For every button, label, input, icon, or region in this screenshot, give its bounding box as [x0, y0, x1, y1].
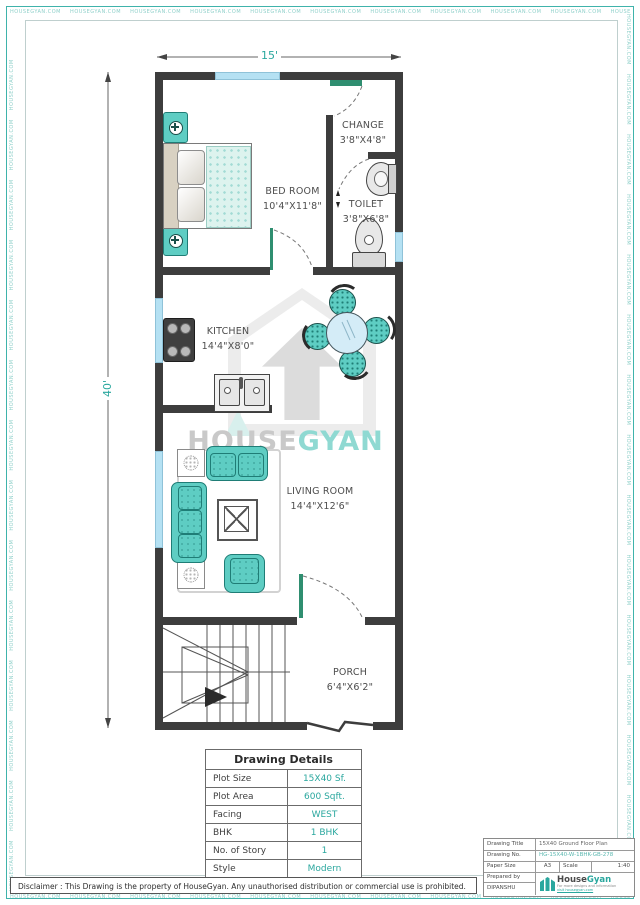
- door-change: [330, 80, 362, 86]
- room-size: 14'4"X8'0": [202, 341, 255, 352]
- wall-bedroom-bottom-a: [155, 267, 270, 275]
- nightstand-icon: [163, 112, 188, 143]
- drawing-no-label: Drawing No.: [484, 850, 536, 861]
- prepared-by-value: DIPANSHU: [484, 883, 536, 895]
- sink-icon: [214, 374, 270, 412]
- toilet-tank: [352, 252, 386, 268]
- detail-label: Plot Area: [206, 788, 288, 806]
- watermark-word-gyan: GYAN: [298, 426, 384, 457]
- room-name: PORCH: [333, 667, 367, 678]
- detail-label: BHK: [206, 824, 288, 842]
- wall-porch-top-a: [155, 617, 297, 625]
- detail-value: 1: [287, 842, 361, 860]
- side-table-icon: [177, 449, 205, 477]
- watermark-strip-right: HOUSEGYAN.COM HOUSEGYAN.COM HOUSEGYAN.CO…: [623, 14, 631, 891]
- watermark-strip-left: HOUSEGYAN.COM HOUSEGYAN.COM HOUSEGYAN.CO…: [9, 14, 17, 891]
- drawing-title-value: 15X40 Ground Floor Plan: [536, 839, 634, 850]
- housegyan-logo: HouseGyan For more designs and informati…: [537, 872, 634, 896]
- sofa-three-seat-icon: [171, 482, 207, 563]
- details-title: Drawing Details: [206, 750, 362, 770]
- wall-bedroom-bottom-b: [313, 267, 395, 275]
- watermark-strip-top: HOUSEGYAN.COM HOUSEGYAN.COM HOUSEGYAN.CO…: [10, 9, 630, 17]
- room-label-change: CHANGE 3'8"X4'8": [328, 119, 398, 148]
- room-size: 10'4"X11'8": [263, 201, 322, 212]
- room-size: 14'4"X12'6": [291, 501, 350, 512]
- wall-bottom-left: [155, 722, 307, 730]
- prepared-by-label: Prepared by: [484, 872, 536, 883]
- detail-label: No. of Story: [206, 842, 288, 860]
- coffee-table-icon: [217, 499, 258, 541]
- window-top: [215, 72, 280, 80]
- table-row: No. of Story 1: [206, 842, 362, 860]
- sofa-two-seat-icon: [206, 446, 268, 481]
- room-size: 3'8"X4'8": [340, 135, 386, 146]
- paper-size-value: A3: [536, 861, 560, 872]
- logo-tagline: For more designs and information visit h…: [557, 884, 616, 892]
- dim-height-label: 40': [101, 377, 114, 400]
- detail-value: Modern: [287, 860, 361, 878]
- drawing-title-label: Drawing Title: [484, 839, 536, 850]
- dining-table-icon: [326, 312, 368, 354]
- room-name: BED ROOM: [265, 186, 319, 197]
- armchair-icon: [224, 554, 265, 593]
- wall-change-toilet-stub: [368, 152, 395, 159]
- detail-label: Facing: [206, 806, 288, 824]
- detail-value: 1 BHK: [287, 824, 361, 842]
- room-name: KITCHEN: [207, 326, 250, 337]
- stove-icon: [163, 318, 195, 362]
- wall-left: [155, 72, 163, 730]
- scale-value: 1:40: [592, 861, 634, 872]
- housegyan-logo-icon: [540, 877, 555, 891]
- logo-word-house: House: [557, 875, 587, 885]
- detail-value: WEST: [287, 806, 361, 824]
- room-name: CHANGE: [342, 120, 384, 131]
- table-row: Facing WEST: [206, 806, 362, 824]
- table-row: BHK 1 BHK: [206, 824, 362, 842]
- detail-label: Style: [206, 860, 288, 878]
- detail-value: 15X40 Sf.: [287, 770, 361, 788]
- room-size: 3'8"X6'8": [343, 214, 389, 225]
- scale-label: Scale: [560, 861, 592, 872]
- drawing-no-value: HG-15X40-W-1BHK-GB-278: [536, 850, 634, 861]
- window-right-toilet: [395, 232, 403, 262]
- disclaimer-text: Disclaimer : This Drawing is the propert…: [10, 877, 477, 894]
- logo-word-gyan: Gyan: [587, 875, 611, 885]
- window-left-living: [155, 451, 163, 548]
- paper-size-label: Paper Size: [484, 861, 536, 872]
- basin-backsplash: [388, 164, 397, 194]
- table-row: Plot Size 15X40 Sf.: [206, 770, 362, 788]
- logo-tagline-link[interactable]: visit housegyan.com: [557, 888, 593, 892]
- door-bedroom: [270, 228, 273, 270]
- room-name: TOILET: [349, 199, 383, 210]
- room-label-toilet: TOILET 3'8"X6'8": [333, 198, 399, 227]
- table-row: Plot Area 600 Sqft.: [206, 788, 362, 806]
- door-living: [299, 574, 303, 618]
- room-label-kitchen: KITCHEN 14'4"X8'0": [194, 325, 262, 354]
- window-left-kitchen: [155, 298, 163, 363]
- wall-porch-top-b: [365, 617, 395, 625]
- table-row: Style Modern: [206, 860, 362, 878]
- drawing-sheet: HOUSEGYAN.COM HOUSEGYAN.COM HOUSEGYAN.CO…: [0, 0, 640, 905]
- title-block: Drawing Title 15X40 Ground Floor Plan Dr…: [483, 838, 635, 897]
- dim-width-label: 15': [258, 49, 281, 62]
- wall-bottom-right: [373, 722, 403, 730]
- detail-label: Plot Size: [206, 770, 288, 788]
- room-label-porch: PORCH 6'4"X6'2": [315, 666, 385, 695]
- side-table-icon: [177, 561, 205, 589]
- room-name: LIVING ROOM: [287, 486, 354, 497]
- nightstand-icon: [163, 225, 188, 256]
- detail-value: 600 Sqft.: [287, 788, 361, 806]
- room-label-living: LIVING ROOM 14'4"X12'6": [268, 485, 372, 514]
- dining-chair-icon: [339, 350, 366, 377]
- housegyan-logo-wordmark: HouseGyan: [557, 876, 616, 885]
- drawing-details-table: Drawing Details Plot Size 15X40 Sf. Plot…: [205, 749, 362, 878]
- room-size: 6'4"X6'2": [327, 682, 373, 693]
